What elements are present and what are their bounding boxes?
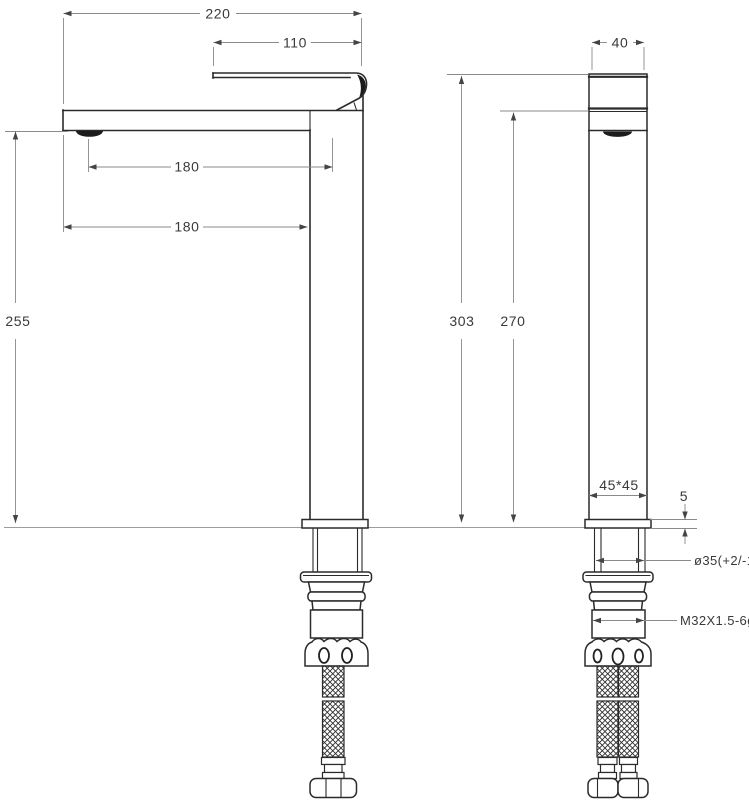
mounting-plate [302, 520, 368, 529]
dimension-overall-height: 303 [447, 75, 588, 523]
front-view [583, 74, 653, 798]
gasket-stack-front [589, 582, 646, 610]
dimension-aerator-offset: 180 [89, 138, 333, 175]
shank-tube-front [595, 528, 646, 572]
mounting-nut [305, 639, 368, 667]
dim-label-body-height: 270 [500, 313, 525, 329]
dim-label-plate-thickness: 5 [680, 488, 688, 504]
nut-slot [635, 650, 643, 663]
dim-label-thread-spec: M32X1.5-6g [680, 613, 749, 628]
hose-braid-lower-right [619, 701, 639, 757]
handle-lever [213, 73, 367, 110]
flange-front [583, 572, 653, 582]
hose-collars-front [598, 758, 638, 779]
dim-label-spout-reach: 180 [174, 219, 199, 235]
mounting-plate-front [585, 520, 651, 529]
hose-braid-lower [323, 701, 345, 757]
aerator [76, 131, 103, 137]
dimension-body-height: 270 [500, 111, 588, 523]
dim-label-overall-height: 303 [449, 313, 474, 329]
hose-braid-upper-left [597, 666, 618, 697]
threaded-body [311, 610, 363, 638]
body-outline [589, 74, 647, 520]
nut-slot [594, 650, 602, 663]
dim-label-overall-width: 220 [205, 6, 230, 22]
dim-label-body-width: 40 [612, 35, 629, 51]
hose-end-nut-right [618, 779, 648, 798]
nut-slot [613, 649, 624, 665]
shank-tube [313, 528, 362, 572]
nut-slot [319, 648, 329, 663]
dimension-spout-reach: 180 [64, 135, 308, 235]
dimension-plate-thickness: 5 [650, 488, 697, 544]
dim-label-base-section: 45*45 [599, 477, 639, 493]
hose-end-nut [310, 779, 357, 798]
gasket-stack [308, 582, 365, 610]
nut-slot [342, 648, 352, 663]
dim-label-mounting-hole: ø35(+2/-1) [694, 553, 749, 568]
dim-label-handle-length: 110 [283, 35, 307, 51]
dimension-overall-width: 220 [64, 6, 362, 105]
dimension-handle-length: 110 [214, 35, 362, 67]
flange [301, 572, 372, 582]
hose-braid-upper [323, 666, 345, 697]
dimension-mounting-hole: ø35(+2/-1) [596, 553, 749, 568]
dim-label-spout-height: 255 [5, 313, 30, 329]
threaded-body-front [592, 610, 645, 638]
hose-braid-lower-left [597, 701, 618, 757]
handle-joint-line [354, 103, 357, 111]
dim-label-aerator-offset: 180 [174, 159, 199, 175]
faucet-dimension-drawing: 220 110 180 180 255 [0, 0, 749, 800]
hose-end-nut-left [588, 779, 618, 798]
hose-collar [322, 758, 346, 779]
dimension-body-width: 40 [592, 35, 644, 71]
side-view [63, 73, 372, 798]
technical-drawing-canvas: 220 110 180 180 255 [0, 0, 749, 800]
hose-braid-upper-right [619, 666, 639, 697]
dimension-spout-height: 255 [5, 132, 68, 524]
